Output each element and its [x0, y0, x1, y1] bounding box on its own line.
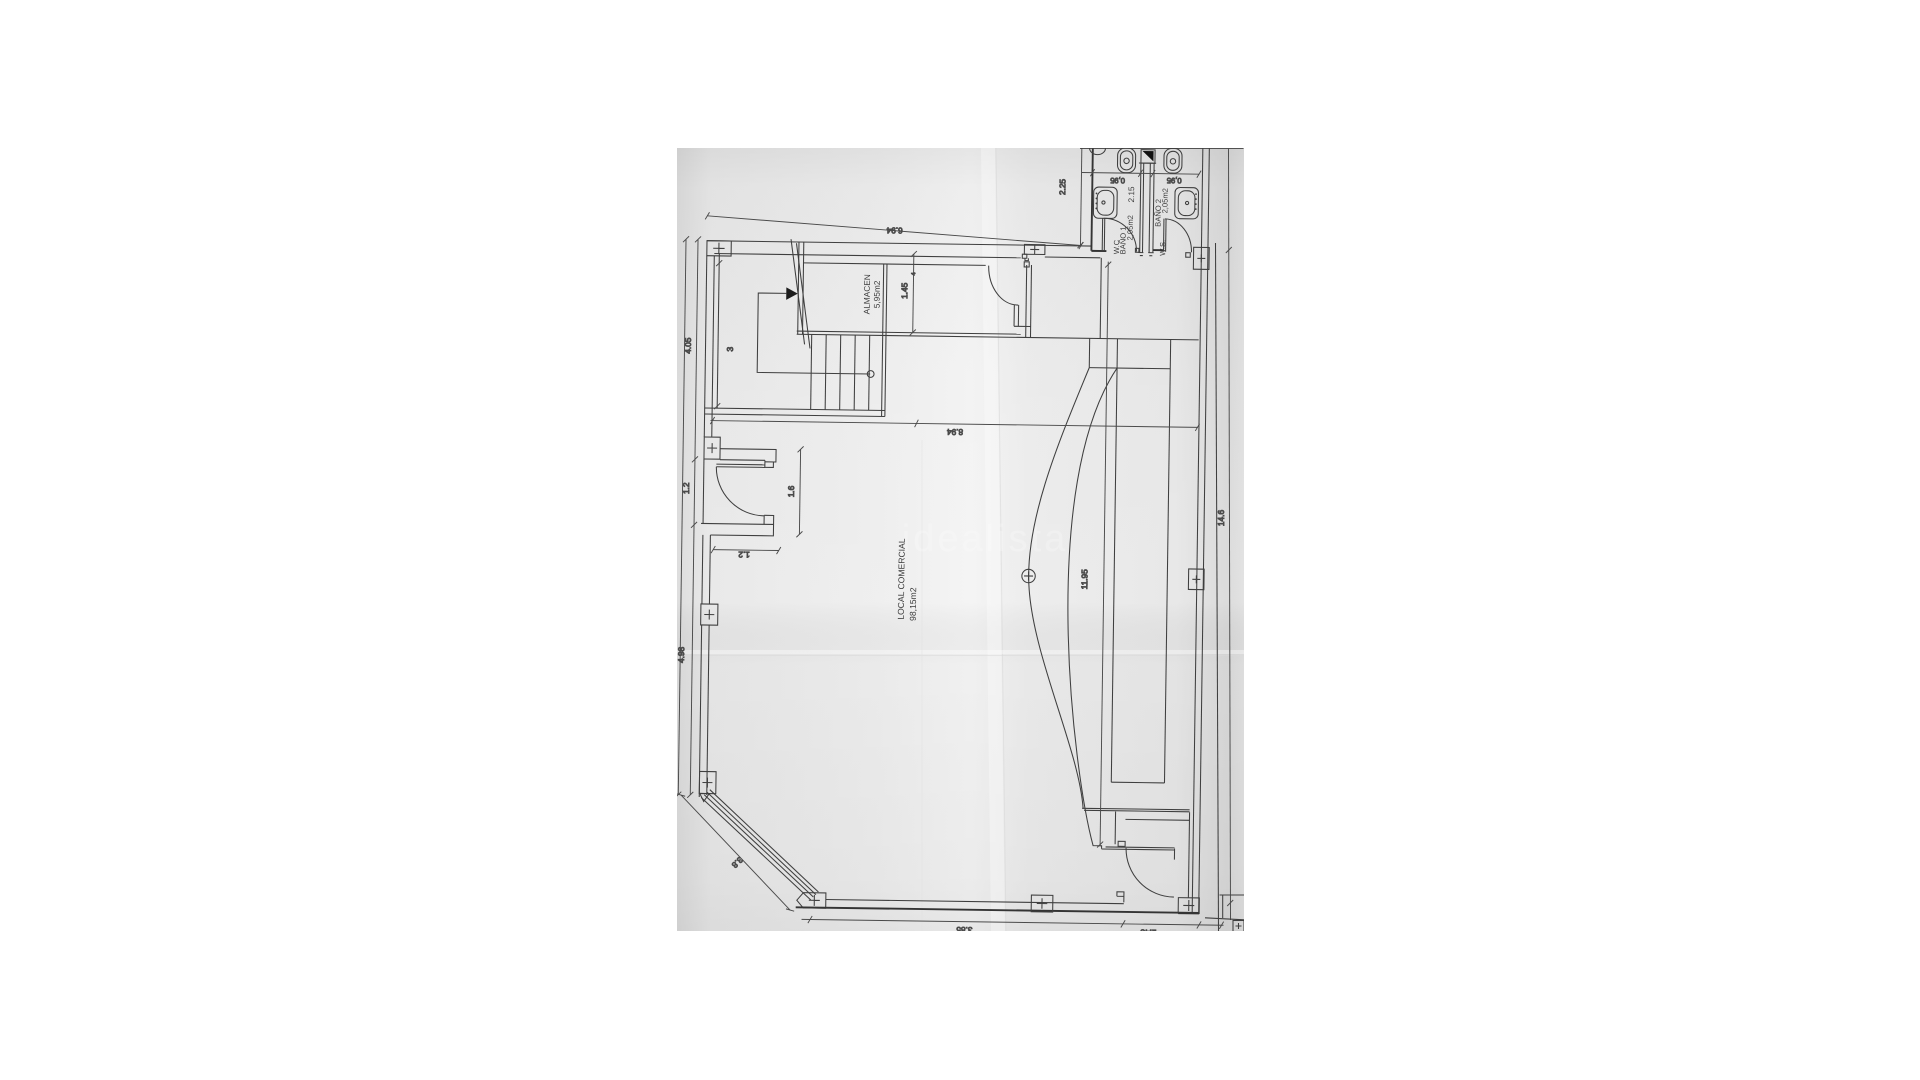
svg-text:8.94: 8.94 — [947, 427, 964, 437]
svg-text:2.25: 2.25 — [1058, 178, 1067, 195]
svg-text:1.6: 1.6 — [786, 485, 796, 497]
svg-text:4.05: 4.05 — [683, 337, 693, 354]
svg-text:1.2: 1.2 — [738, 550, 750, 560]
svg-text:4: 4 — [911, 272, 917, 275]
svg-text:0,95: 0,95 — [1167, 176, 1182, 185]
svg-text:2,05m2: 2,05m2 — [1160, 188, 1169, 213]
svg-text:1.2: 1.2 — [681, 482, 691, 494]
svg-text:2,05m2: 2,05m2 — [1126, 215, 1135, 240]
svg-text:98,15m2: 98,15m2 — [908, 587, 918, 621]
svg-text:ALMACEN: ALMACEN — [861, 274, 872, 314]
svg-text:11.95: 11.95 — [1079, 569, 1089, 590]
svg-text:3: 3 — [725, 347, 735, 352]
svg-text:idealista: idealista — [902, 518, 1068, 560]
svg-text:0,95: 0,95 — [1110, 176, 1125, 185]
svg-text:2.15: 2.15 — [1127, 186, 1136, 203]
svg-text:LOCAL COMERCIAL: LOCAL COMERCIAL — [896, 538, 907, 620]
svg-text:5,95m2: 5,95m2 — [872, 280, 882, 308]
svg-text:W.S.: W.S. — [1158, 240, 1167, 256]
svg-text:1.45: 1.45 — [899, 282, 909, 299]
svg-text:14.6: 14.6 — [1216, 510, 1226, 527]
svg-text:6.94: 6.94 — [886, 226, 903, 236]
svg-text:4.98: 4.98 — [676, 646, 686, 663]
